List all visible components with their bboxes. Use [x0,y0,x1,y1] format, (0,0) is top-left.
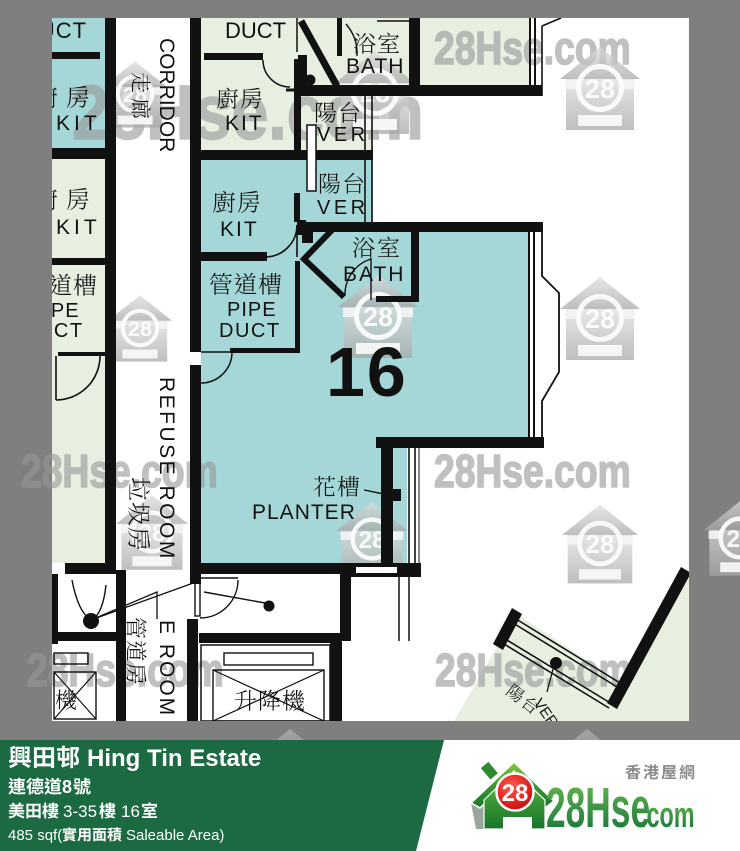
svg-text:28Hse.com: 28Hse.com [21,445,218,497]
svg-text:CORRIDOR: CORRIDOR [155,38,178,152]
svg-text:PIPE: PIPE [227,299,277,321]
svg-text:KIT: KIT [56,112,101,135]
svg-text:Hing Tin Estate: Hing Tin Estate [87,745,261,772]
svg-text:E ROOM: E ROOM [155,620,178,717]
svg-text:KIT: KIT [220,218,259,241]
svg-text:REFUSE ROOM: REFUSE ROOM [155,377,178,561]
svg-text:BATH: BATH [346,55,404,78]
svg-text:28Hse.com: 28Hse.com [434,445,631,497]
svg-text:PLANTER: PLANTER [252,501,356,524]
svg-text:VER: VER [317,124,369,146]
svg-text:16: 16 [121,802,140,821]
svg-text:KIT: KIT [56,216,101,239]
svg-text:.com: .com [640,796,695,835]
svg-text:3-35: 3-35 [63,802,97,821]
svg-text:DUCT: DUCT [225,18,286,43]
svg-text:28Hse.com: 28Hse.com [435,644,632,696]
svg-text:16: 16 [326,333,408,411]
svg-text:485 sqf(: 485 sqf( [8,827,62,844]
svg-text:28: 28 [502,780,529,807]
svg-text:8: 8 [62,777,72,797]
svg-text:VER: VER [317,197,369,219]
svg-text:BATH: BATH [343,263,405,286]
svg-text:28Hse: 28Hse [546,777,650,841]
svg-text:Saleable Area): Saleable Area) [126,827,224,844]
svg-text:DUCT: DUCT [219,320,281,342]
svg-text:KIT: KIT [225,112,264,135]
